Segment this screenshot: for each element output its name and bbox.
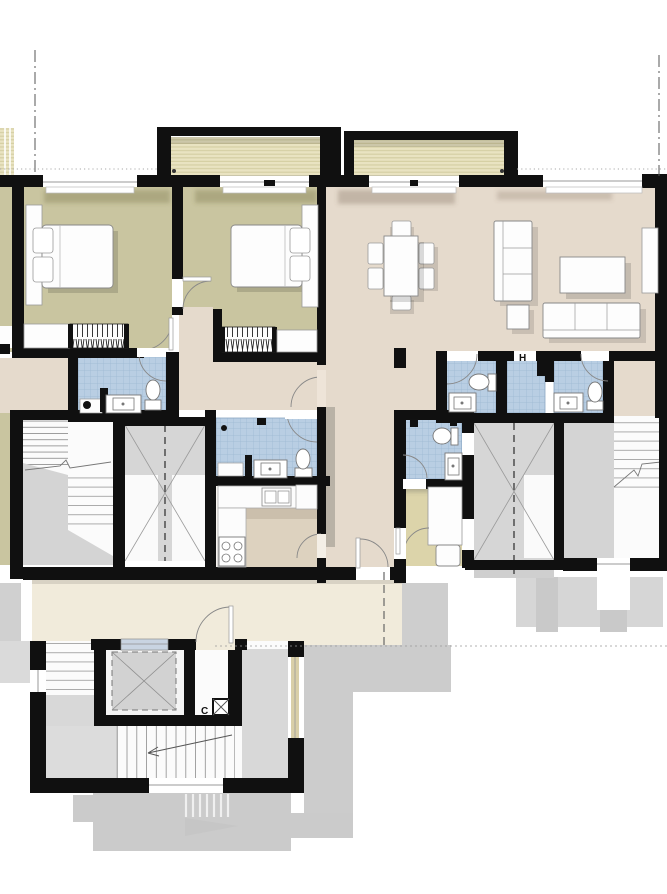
- svg-text:H: H: [519, 353, 526, 364]
- svg-text:C: C: [201, 706, 208, 717]
